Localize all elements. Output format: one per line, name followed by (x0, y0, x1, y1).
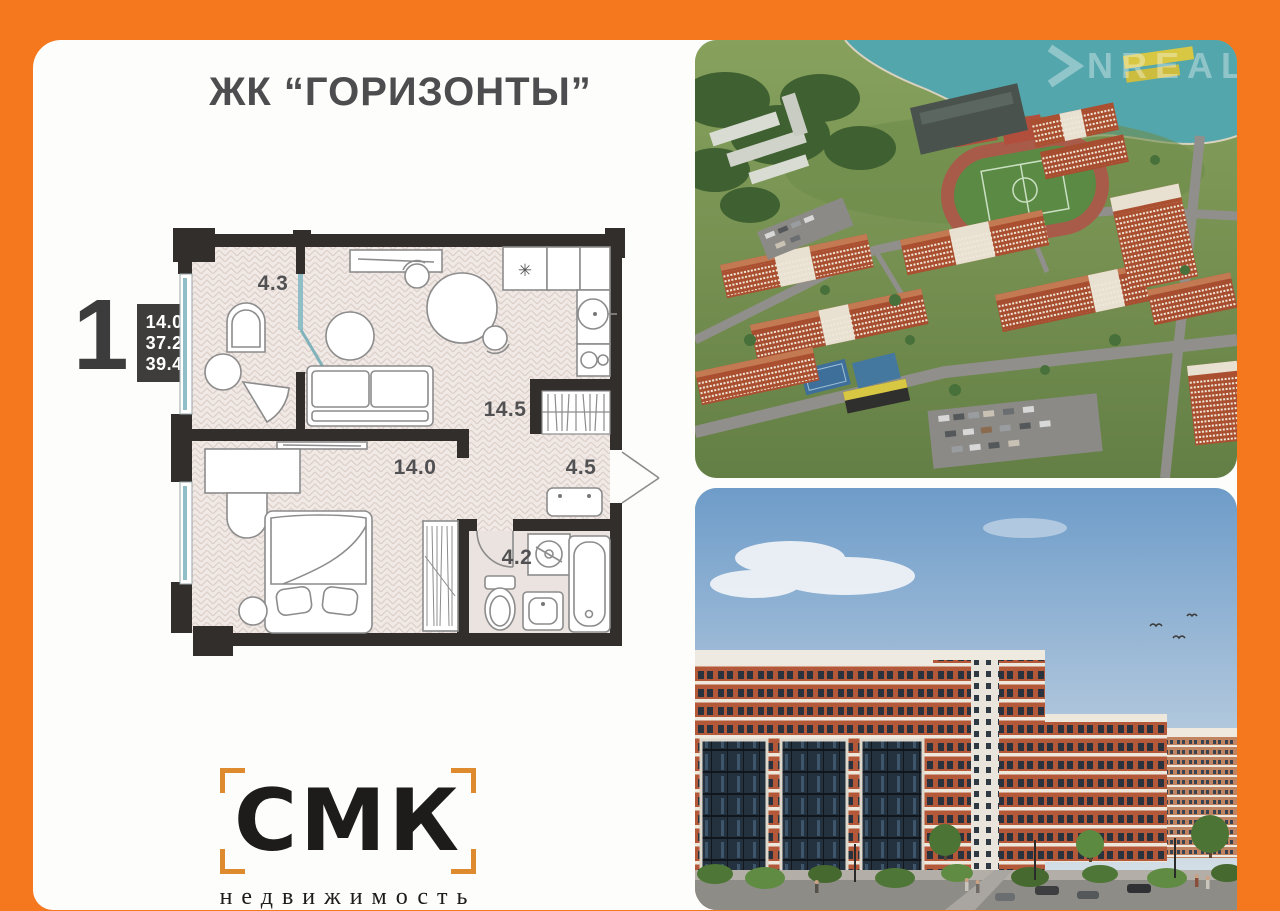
svg-text:NREAL: NREAL (1087, 45, 1237, 86)
logo-name: СМК (220, 768, 476, 874)
bracket-icon (220, 849, 245, 874)
freezer-icon: ✳ (518, 261, 532, 280)
nightstand (239, 597, 267, 625)
sofa (307, 366, 433, 426)
room-label-bathroom: 4.2 (502, 546, 533, 569)
bedroom-tv (277, 442, 367, 449)
page-title: ЖК “ГОРИЗОНТЫ” (128, 70, 673, 115)
bathroom-sink (523, 592, 563, 630)
washing-machine (528, 534, 570, 575)
entry-console (547, 488, 602, 516)
mid-building (1045, 714, 1167, 862)
bracket-icon (220, 768, 245, 793)
floor-plan: ✳ (165, 226, 665, 661)
room-label-hallway: 4.5 (566, 456, 597, 479)
photo-street-render (695, 488, 1237, 910)
window-balcony (180, 274, 192, 414)
window-bedroom (180, 482, 192, 584)
bed (265, 511, 372, 633)
pouf (326, 312, 374, 360)
logo-subtitle: недвижимость (183, 884, 513, 911)
photo-aerial-render: NREAL (695, 40, 1237, 478)
tv-console-living (350, 250, 442, 272)
hall-closet (542, 391, 610, 434)
flyer-background: { "page": { "background_color": "#F5771E… (0, 0, 1280, 910)
bathtub (569, 536, 610, 632)
balcony-armchair (227, 303, 265, 352)
room-label-bedroom: 14.0 (394, 456, 437, 479)
room-label-balcony: 4.3 (258, 272, 289, 295)
room-label-kitchen-living: 14.5 (484, 398, 527, 421)
toilet (485, 576, 515, 630)
rooms-count: 1 (73, 296, 129, 374)
stove (577, 344, 610, 376)
content-card: ЖК “ГОРИЗОНТЫ” 1 14.0 37.2 39.4 (33, 40, 1237, 910)
desk (205, 449, 300, 493)
wardrobe (423, 521, 458, 631)
entry-door (622, 452, 659, 503)
desk-chair (227, 493, 267, 538)
bracket-icon (451, 768, 476, 793)
balcony-table (205, 354, 241, 390)
smk-logo: СМК недвижимость (183, 768, 513, 911)
bracket-icon (451, 849, 476, 874)
